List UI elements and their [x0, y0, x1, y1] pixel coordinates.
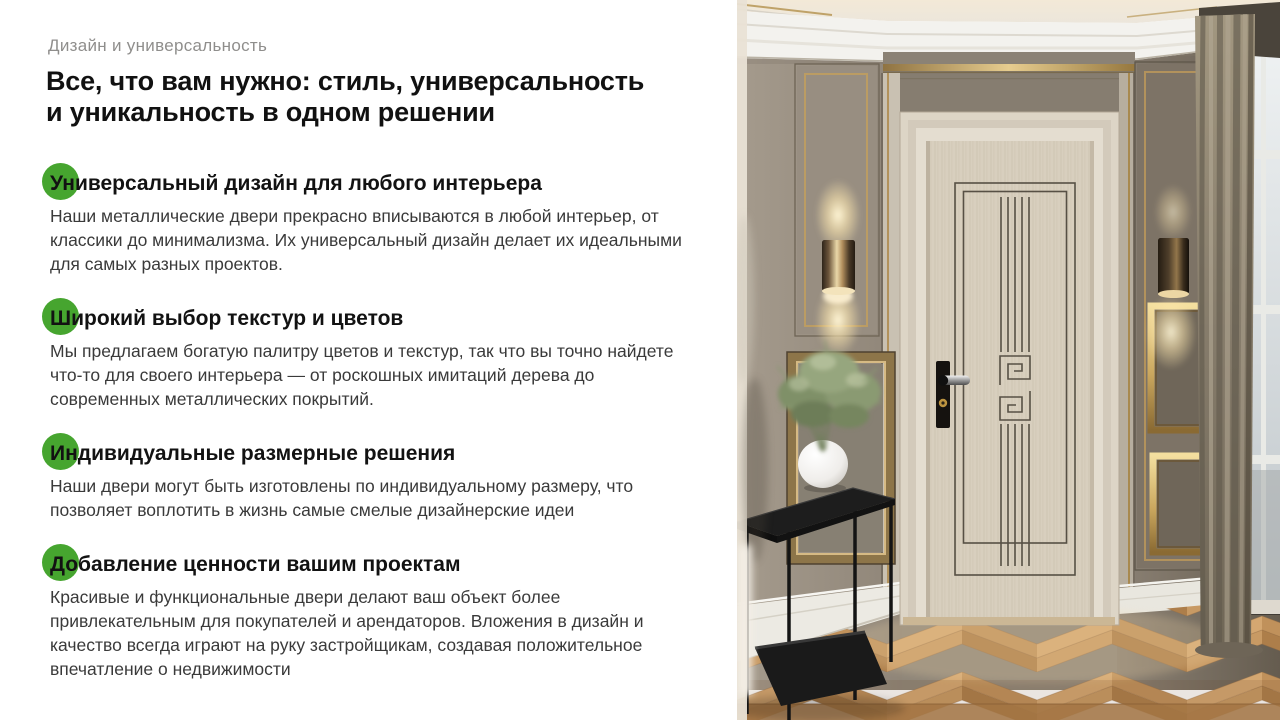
feature-title: Индивидуальные размерные решения: [50, 441, 690, 466]
transom-panel: [883, 52, 1135, 114]
feature-body: Красивые и функциональные двери делают в…: [50, 585, 690, 681]
feature-list: Универсальный дизайн для любого интерьер…: [50, 171, 712, 681]
feature-item-added-value: Добавление ценности вашим проектам Краси…: [50, 552, 690, 681]
slide-title-line1: Все, что вам нужно: стиль, универсальнос…: [46, 66, 712, 97]
interior-door-photo: [737, 0, 1280, 720]
feature-item-textures-colors: Широкий выбор текстур и цветов Мы предла…: [50, 306, 690, 411]
presentation-slide: Дизайн и универсальность Все, что вам ну…: [0, 0, 1280, 720]
feature-title: Добавление ценности вашим проектам: [50, 552, 690, 577]
feature-item-universal-design: Универсальный дизайн для любого интерьер…: [50, 171, 690, 276]
door: [900, 112, 1119, 625]
slide-title-line2: и уникальность в одном решении: [46, 97, 712, 128]
feature-body: Наши металлические двери прекрасно вписы…: [50, 204, 690, 276]
feature-body: Наши двери могут быть изготовлены по инд…: [50, 474, 690, 522]
slide-title: Все, что вам нужно: стиль, универсальнос…: [46, 66, 712, 128]
eyebrow-label: Дизайн и универсальность: [48, 36, 712, 56]
feature-body: Мы предлагаем богатую палитру цветов и т…: [50, 339, 690, 411]
feature-title: Широкий выбор текстур и цветов: [50, 306, 690, 331]
feature-item-custom-sizes: Индивидуальные размерные решения Наши дв…: [50, 441, 690, 522]
feature-title: Универсальный дизайн для любого интерьер…: [50, 171, 690, 196]
slide-text-column: Дизайн и универсальность Все, что вам ну…: [46, 36, 712, 711]
